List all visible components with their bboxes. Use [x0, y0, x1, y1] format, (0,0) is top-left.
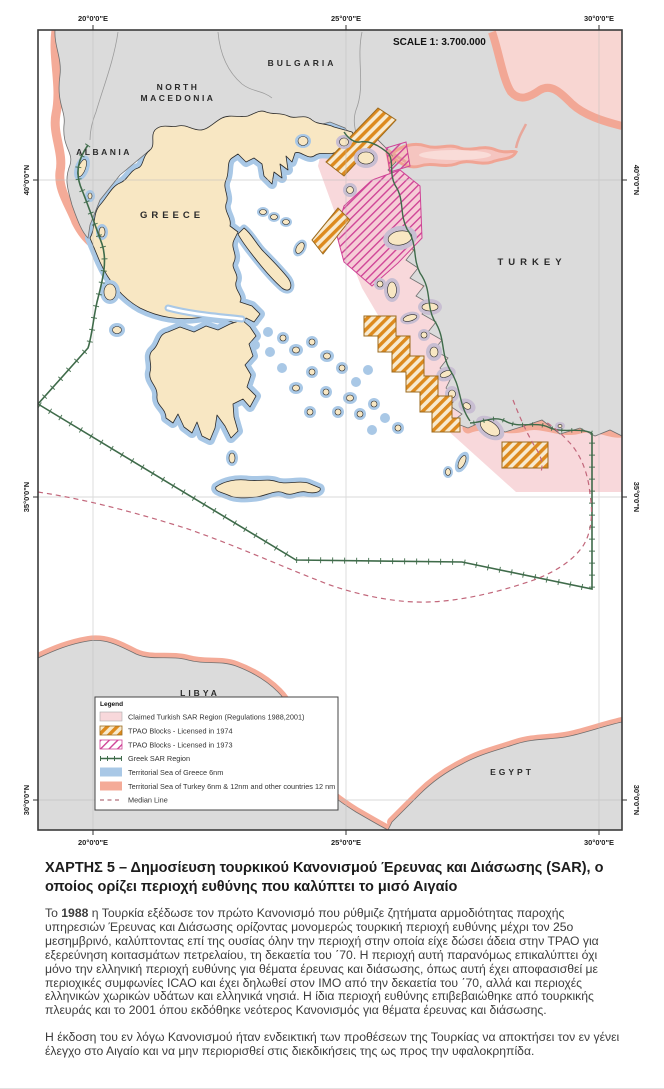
lon-label-bottom-30: 30°0'0"E [584, 838, 614, 845]
legend-item-1974: TPAO Blocks - Licensed in 1974 [128, 727, 233, 736]
legend-item-turkey-sea: Territorial Sea of Turkey 6nm & 12nm and… [128, 782, 335, 791]
label-egypt: EGYPT [490, 767, 534, 777]
legend-swatch-greece-sea [100, 768, 122, 777]
lat-label-right-30: 30°0'0"N [632, 785, 641, 815]
caption-p1-bold-year: 1988 [61, 906, 88, 920]
map-canvas: SCALE 1: 3.700.000 NORTH MACEDONIA BULGA… [0, 0, 664, 845]
legend-swatch-sar [100, 712, 122, 721]
caption-p1-rest: η Τουρκία εξέδωσε τον πρώτο Κανονισμό πο… [45, 906, 599, 1017]
lat-label-left-30: 30°0'0"N [22, 785, 31, 815]
legend-swatch-1974 [100, 726, 122, 735]
lon-label-top-25: 25°0'0"E [331, 14, 361, 23]
lon-label-bottom-25: 25°0'0"E [331, 838, 361, 845]
lat-label-right-35: 35°0'0"N [632, 482, 641, 512]
map-body: SCALE 1: 3.700.000 NORTH MACEDONIA BULGA… [38, 30, 622, 830]
legend-swatch-turkey-sea [100, 782, 122, 791]
lat-label-left-35: 35°0'0"N [22, 482, 31, 512]
legend-item-greek-sar: Greek SAR Region [128, 754, 190, 763]
lat-label-right-40: 40°0'0"N [632, 165, 641, 195]
map-figure: SCALE 1: 3.700.000 NORTH MACEDONIA BULGA… [0, 0, 664, 845]
legend-item-1973: TPAO Blocks - Licensed in 1973 [128, 741, 233, 750]
label-north-macedonia-1: NORTH [157, 82, 200, 92]
lon-label-bottom-20: 20°0'0"E [78, 838, 108, 845]
label-greece: GREECE [140, 210, 204, 221]
legend-item-median: Median Line [128, 796, 168, 805]
legend-item-greece-sea: Territorial Sea of Greece 6nm [128, 768, 223, 777]
legend-item-sar: Claimed Turkish SAR Region (Regulations … [128, 713, 304, 722]
legend-swatch-1973-hatch [100, 740, 122, 749]
caption-block: ΧΑΡΤΗΣ 5 – Δημοσίευση τουρκικού Κανονισμ… [0, 845, 664, 1089]
legend-title: Legend [100, 701, 123, 708]
caption-title: ΧΑΡΤΗΣ 5 – Δημοσίευση τουρκικού Κανονισμ… [45, 859, 636, 897]
caption-paragraph-2: Η έκδοση του εν λόγω Κανονισμού ήταν ενδ… [45, 1031, 623, 1059]
label-bulgaria: BULGARIA [268, 58, 337, 68]
lon-label-top-20: 20°0'0"E [78, 14, 108, 23]
map-legend: Legend Claimed Turkish SAR Region (Regul… [95, 697, 338, 810]
label-turkey: TURKEY [497, 257, 566, 268]
lon-label-top-30: 30°0'0"E [584, 14, 614, 23]
label-north-macedonia-2: MACEDONIA [141, 93, 216, 103]
lat-label-left-40: 40°0'0"N [22, 165, 31, 195]
label-albania: ALBANIA [76, 147, 132, 157]
caption-p1-pre: Το [45, 906, 61, 920]
caption-paragraph-1: Το 1988 η Τουρκία εξέδωσε τον πρώτο Κανο… [45, 907, 623, 1018]
scale-label: SCALE 1: 3.700.000 [393, 37, 486, 48]
